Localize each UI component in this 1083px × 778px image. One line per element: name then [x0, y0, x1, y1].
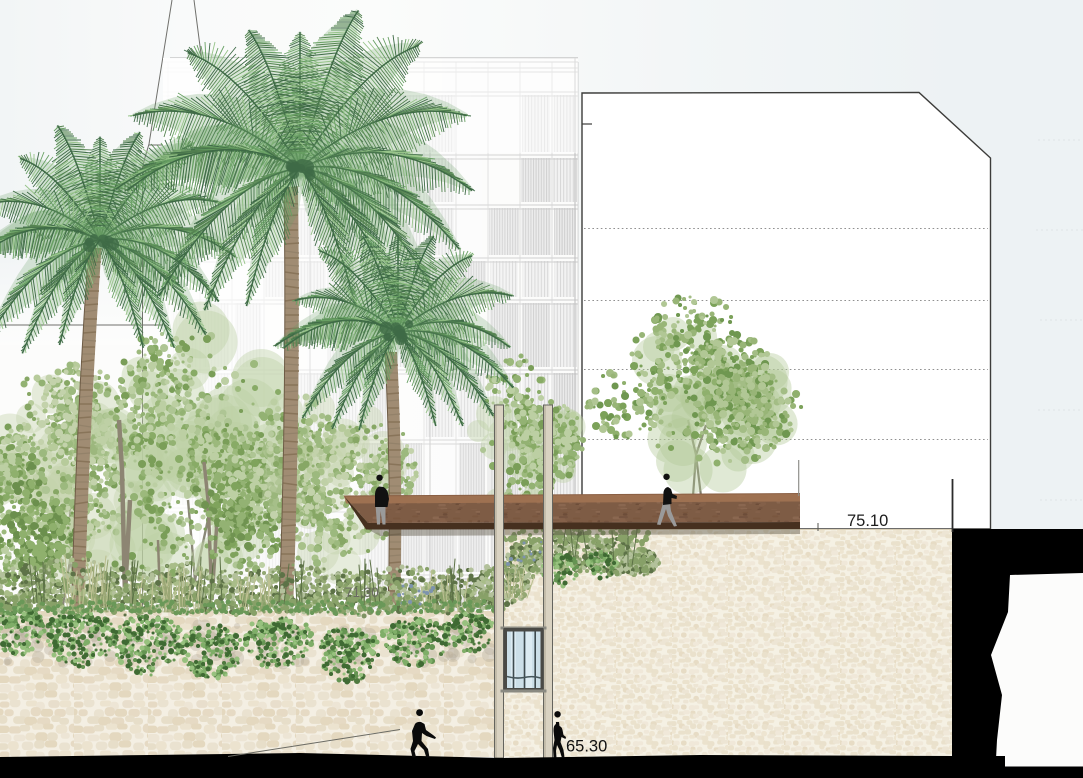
svg-text:65.30: 65.30	[566, 738, 607, 756]
svg-text:71.30: 71.30	[345, 585, 379, 600]
svg-text:75.10: 75.10	[847, 512, 888, 530]
